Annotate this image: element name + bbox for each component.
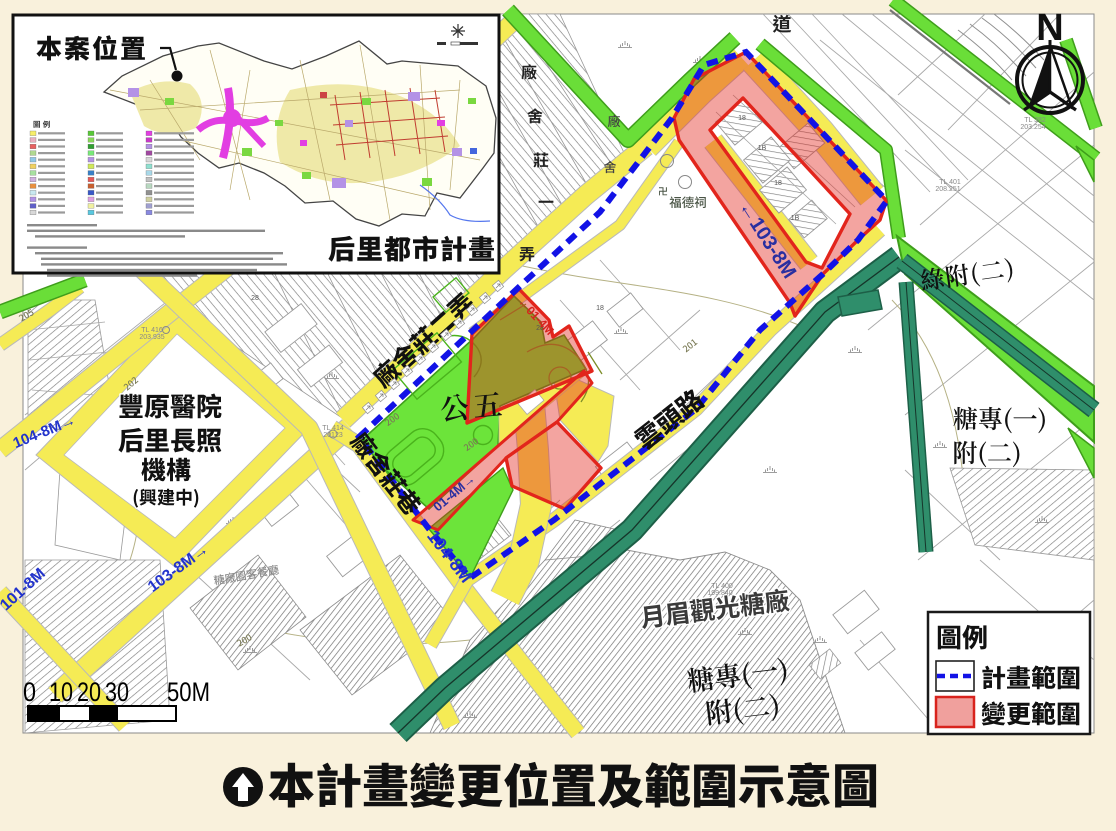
svg-text:30: 30 — [105, 677, 129, 707]
svg-text:208.251: 208.251 — [935, 186, 960, 193]
svg-text:TL 401: TL 401 — [939, 179, 961, 186]
svg-text:18: 18 — [774, 180, 782, 187]
svg-text:TL 414: TL 414 — [322, 425, 344, 432]
svg-text:203.935: 203.935 — [139, 334, 164, 341]
svg-text:TL 382: TL 382 — [1024, 117, 1046, 124]
svg-text:199.840: 199.840 — [707, 590, 732, 597]
svg-text:18: 18 — [596, 305, 604, 312]
svg-text:TL 400: TL 400 — [711, 583, 733, 590]
svg-text:10: 10 — [49, 677, 73, 707]
svg-text:1B: 1B — [758, 145, 767, 152]
svg-text:20123: 20123 — [323, 432, 343, 439]
svg-text:18: 18 — [738, 115, 746, 122]
svg-text:1B: 1B — [791, 215, 800, 222]
svg-text:50M: 50M — [167, 677, 210, 707]
svg-text:28: 28 — [251, 295, 259, 302]
svg-text:20: 20 — [77, 677, 101, 707]
svg-text:0: 0 — [23, 677, 36, 707]
svg-text:TL 416: TL 416 — [141, 327, 163, 334]
svg-text:203.254: 203.254 — [1020, 124, 1045, 131]
